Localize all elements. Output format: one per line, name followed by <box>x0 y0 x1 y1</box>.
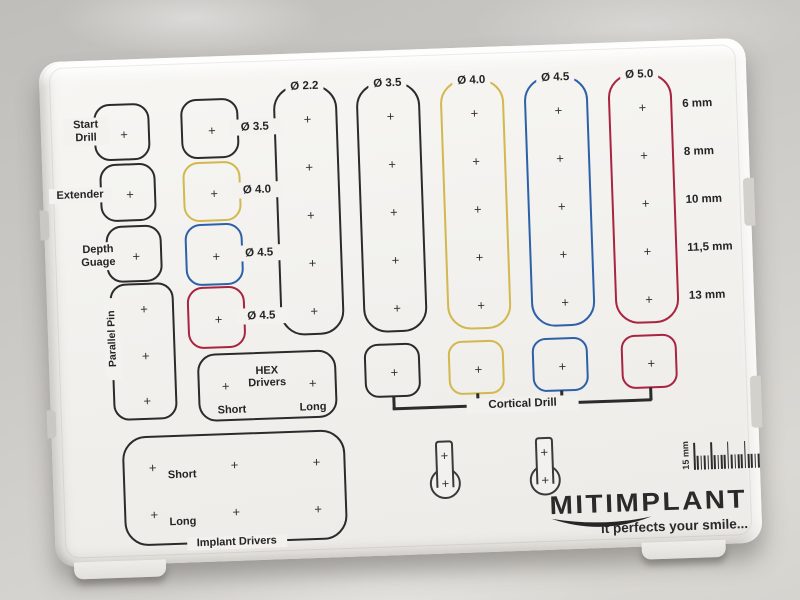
ruler-tick <box>697 456 699 470</box>
tool-label-extender: Extender <box>49 187 111 204</box>
plus-hole: + <box>541 473 549 486</box>
hex-long-label: Long <box>299 401 326 414</box>
depth-label: 11,5 mm <box>687 239 747 255</box>
implant-drivers-box: + + + + + + Short Long Implant Drivers <box>122 429 349 547</box>
depth-label: 13 mm <box>689 287 749 303</box>
plus-hole: + <box>554 104 562 117</box>
plus-hole: + <box>470 107 478 120</box>
ruler-tick <box>721 455 723 469</box>
plus-hole: + <box>645 293 653 306</box>
ruler-tick <box>727 442 730 469</box>
sleeve-diameter-label: Ø 4.5 <box>233 244 286 262</box>
ruler-tick <box>758 454 760 468</box>
hex-short-label: Short <box>217 403 246 416</box>
ruler: 15 mm <box>680 432 760 471</box>
ruler-tick <box>704 455 706 469</box>
drill-column-ø-4.5: Ø 4.5+++++ <box>523 75 596 327</box>
ruler-tick <box>724 455 726 469</box>
implant-drivers-title: Implant Drivers <box>187 534 287 550</box>
ruler-tick <box>693 443 696 470</box>
plus-hole: + <box>212 250 220 263</box>
plus-hole: + <box>149 461 157 474</box>
edge-notch <box>750 375 763 427</box>
ruler-tick <box>737 454 739 468</box>
drill-column-label: Ø 4.5 <box>536 69 575 87</box>
plus-hole: + <box>388 158 396 171</box>
plus-hole: + <box>540 445 548 458</box>
plus-hole: + <box>386 110 394 123</box>
plus-hole: + <box>222 380 230 393</box>
plus-hole: + <box>477 299 485 312</box>
hex-drivers-box: + + HEX Drivers Short Long <box>197 349 338 422</box>
ruler-tick <box>751 454 753 468</box>
ruler-tick <box>710 442 713 469</box>
ruler-tick <box>741 454 743 468</box>
plus-hole: + <box>150 508 158 521</box>
plus-hole: + <box>310 304 318 317</box>
implant-long-label: Long <box>169 515 196 528</box>
ruler-tick <box>744 441 747 468</box>
edge-notch <box>47 410 57 438</box>
ruler-tick <box>747 454 749 468</box>
tray-foot <box>642 540 727 560</box>
plus-hole: + <box>307 208 315 221</box>
drill-column-ø-5.0: Ø 5.0+++++ <box>607 72 680 324</box>
plus-hole: + <box>440 449 448 462</box>
ruler-tick <box>700 456 702 470</box>
plus-hole: + <box>309 376 317 389</box>
cortical-drill-slot-4: + <box>620 333 678 389</box>
cortical-drill-slot-1: + <box>363 342 421 398</box>
plus-hole: + <box>474 203 482 216</box>
plus-hole: + <box>640 149 648 162</box>
edge-notch <box>40 210 50 240</box>
drill-column-label: Ø 5.0 <box>620 66 659 84</box>
depth-label: 8 mm <box>684 143 744 159</box>
tool-label-parallel-pin: Parallel Pin <box>103 298 122 381</box>
plus-hole: + <box>309 256 317 269</box>
keyhole-slot: + + <box>424 438 466 501</box>
plus-hole: + <box>312 455 320 468</box>
plus-hole: + <box>304 113 312 126</box>
plus-hole: + <box>474 363 482 376</box>
drill-column-label: Ø 2.2 <box>285 78 324 96</box>
plus-hole: + <box>132 249 140 262</box>
plus-hole: + <box>475 251 483 264</box>
drill-column-ø-2.2: Ø 2.2+++++ <box>272 84 345 336</box>
ruler-tick <box>717 455 719 469</box>
sleeve-diameter-label: Ø 4.0 <box>231 181 284 199</box>
plus-hole: + <box>214 313 222 326</box>
drill-column-label: Ø 4.0 <box>452 72 491 90</box>
photo-scene: { "plus_mark": "+", "colors": { "print":… <box>0 0 800 600</box>
implant-short-label: Short <box>168 468 197 481</box>
cortical-drill-label: Cortical Drill <box>466 395 578 414</box>
cortical-drill-slot-2: + <box>447 339 505 395</box>
plus-hole: + <box>558 200 566 213</box>
cortical-drill-slot-3: + <box>531 337 589 393</box>
plus-hole: + <box>643 245 651 258</box>
ruler-tick <box>731 455 733 469</box>
drill-column-ø-3.5: Ø 3.5+++++ <box>355 81 428 333</box>
plus-hole: + <box>559 248 567 261</box>
plus-hole: + <box>305 160 313 173</box>
plus-hole: + <box>142 349 150 362</box>
plus-hole: + <box>647 357 655 370</box>
plus-hole: + <box>210 187 218 200</box>
plus-hole: + <box>556 152 564 165</box>
ruler-tick <box>754 454 756 468</box>
ruler-tick <box>734 454 736 468</box>
plus-hole: + <box>126 188 134 201</box>
tool-label-depth-guage: Depth Guage <box>73 242 124 272</box>
tool-label-start-drill: Start Drill <box>62 117 109 147</box>
tray-foot <box>74 559 167 579</box>
keyhole-slot: + + <box>524 434 566 497</box>
depth-label: 10 mm <box>685 191 745 207</box>
surgical-tray: + + HEX Drivers Short Long Cortical Dril… <box>38 38 762 567</box>
drill-column-ø-4.0: Ø 4.0+++++ <box>439 78 512 330</box>
ruler-tick <box>714 455 716 469</box>
sleeve-diameter-label: Ø 3.5 <box>229 118 282 136</box>
depth-label: 6 mm <box>682 95 742 111</box>
plus-hole: + <box>558 360 566 373</box>
ruler-label: 15 mm <box>680 441 691 470</box>
plus-hole: + <box>441 477 449 490</box>
ruler-tick <box>707 455 709 469</box>
plus-hole: + <box>120 127 128 140</box>
plus-hole: + <box>231 458 239 471</box>
plus-hole: + <box>393 301 401 314</box>
brand-logo-block: MITIMPLANT it perfects your smile... <box>549 484 748 539</box>
plus-hole: + <box>314 502 322 515</box>
plus-hole: + <box>390 366 398 379</box>
plus-hole: + <box>472 155 480 168</box>
plus-hole: + <box>232 505 240 518</box>
plus-hole: + <box>638 101 646 114</box>
sleeve-diameter-label: Ø 4.5 <box>235 307 288 325</box>
plus-hole: + <box>561 296 569 309</box>
plus-hole: + <box>390 206 398 219</box>
ruler-ticks <box>693 441 760 470</box>
plus-hole: + <box>391 254 399 267</box>
plus-hole: + <box>208 124 216 137</box>
plus-hole: + <box>140 302 148 315</box>
drill-column-label: Ø 3.5 <box>368 75 407 93</box>
plus-hole: + <box>642 197 650 210</box>
plus-hole: + <box>143 394 151 407</box>
